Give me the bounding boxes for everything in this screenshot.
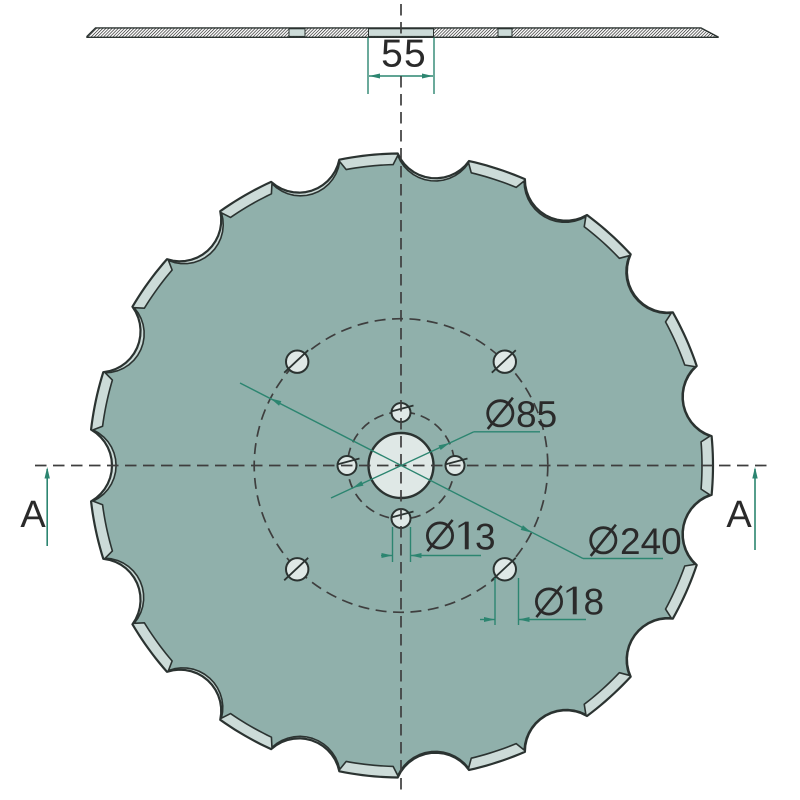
svg-text:A: A	[20, 494, 46, 536]
svg-text:3: 3	[475, 516, 496, 557]
svg-text:8: 8	[584, 581, 605, 622]
svg-text:85: 85	[516, 394, 557, 435]
svg-text:240: 240	[620, 521, 682, 562]
svg-text:A: A	[726, 494, 752, 536]
svg-text:55: 55	[381, 32, 427, 75]
